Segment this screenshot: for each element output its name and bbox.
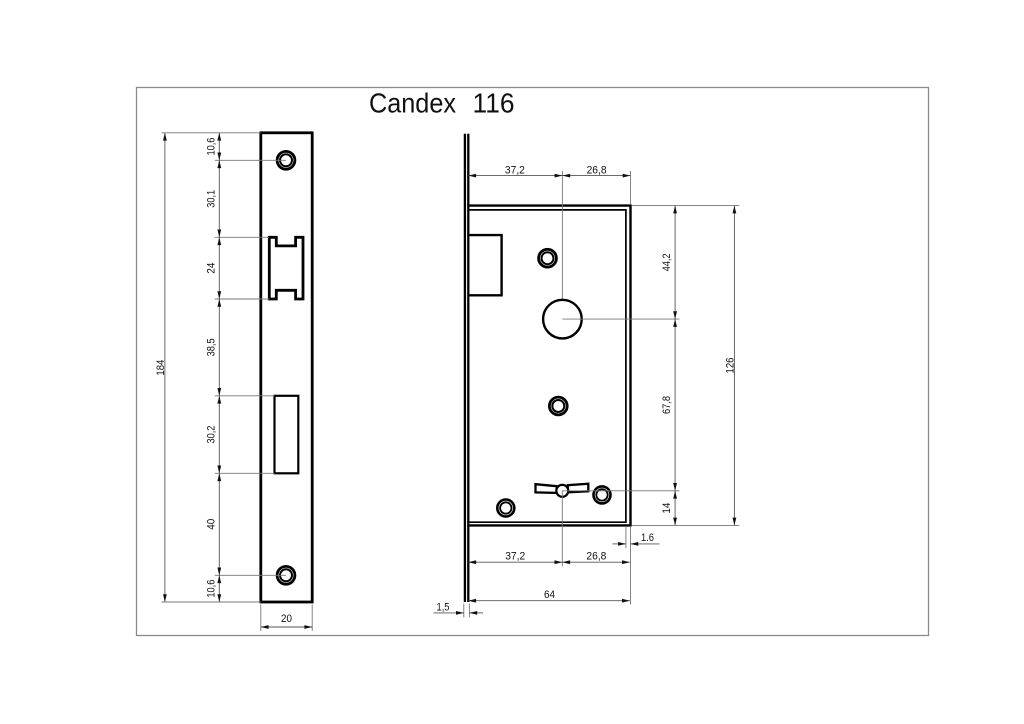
- svg-text:26,8: 26,8: [586, 551, 606, 563]
- svg-text:40: 40: [205, 519, 217, 530]
- svg-text:10,6: 10,6: [205, 580, 217, 598]
- svg-text:30,1: 30,1: [205, 190, 217, 208]
- svg-text:38,5: 38,5: [205, 338, 217, 356]
- svg-text:64: 64: [544, 589, 555, 601]
- svg-text:24: 24: [205, 263, 217, 274]
- svg-text:26,8: 26,8: [587, 164, 607, 176]
- svg-text:10,6: 10,6: [205, 138, 217, 156]
- svg-text:14: 14: [661, 503, 673, 514]
- svg-text:37,2: 37,2: [505, 164, 525, 176]
- svg-text:44,2: 44,2: [661, 253, 673, 271]
- svg-text:Candex: Candex: [369, 88, 456, 119]
- svg-text:20: 20: [281, 613, 292, 625]
- svg-text:37,2: 37,2: [505, 551, 525, 563]
- svg-text:1,5: 1,5: [437, 601, 450, 613]
- svg-text:116: 116: [473, 88, 515, 119]
- svg-text:1.6: 1.6: [641, 532, 654, 544]
- svg-text:30,2: 30,2: [205, 426, 217, 444]
- svg-text:126: 126: [725, 358, 737, 374]
- svg-text:67,8: 67,8: [661, 396, 673, 414]
- svg-text:184: 184: [155, 360, 167, 376]
